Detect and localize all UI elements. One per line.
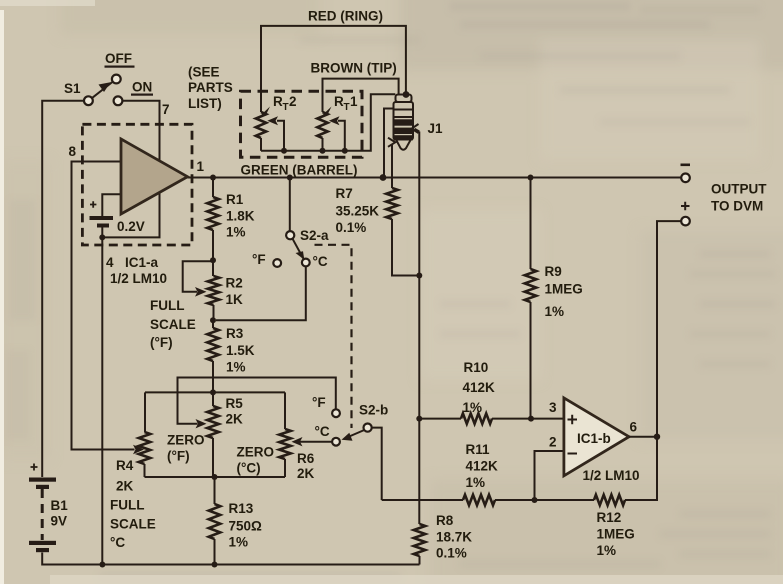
svg-text:S1: S1 — [64, 81, 81, 96]
svg-text:R4: R4 — [116, 458, 134, 473]
svg-text:R8: R8 — [436, 513, 454, 528]
svg-text:S2-a: S2-a — [300, 228, 329, 243]
svg-text:OUTPUT: OUTPUT — [711, 182, 767, 197]
svg-text:6: 6 — [630, 420, 638, 435]
svg-text:°C: °C — [313, 254, 328, 269]
svg-text:1%: 1% — [226, 360, 246, 375]
svg-text:R: R — [273, 94, 283, 109]
svg-text:GREEN (BARREL): GREEN (BARREL) — [241, 163, 358, 178]
svg-text:0.2V: 0.2V — [117, 219, 145, 234]
svg-text:1MEG: 1MEG — [545, 282, 583, 297]
svg-text:FULL: FULL — [110, 498, 145, 513]
svg-text:T: T — [344, 102, 350, 113]
svg-text:BROWN (TIP): BROWN (TIP) — [311, 61, 397, 76]
svg-text:8: 8 — [69, 144, 77, 159]
svg-text:R2: R2 — [226, 276, 243, 291]
svg-text:(°C): (°C) — [237, 461, 261, 476]
svg-text:1: 1 — [350, 94, 358, 109]
svg-text:OFF: OFF — [105, 51, 132, 66]
svg-text:1%: 1% — [466, 475, 486, 490]
svg-text:RED (RING): RED (RING) — [308, 9, 383, 24]
svg-text:2: 2 — [289, 94, 297, 109]
svg-text:ON: ON — [132, 80, 152, 95]
svg-text:1/2 LM10: 1/2 LM10 — [583, 468, 640, 483]
svg-text:ZERO: ZERO — [237, 445, 275, 460]
svg-text:R12: R12 — [597, 510, 622, 525]
svg-text:2K: 2K — [297, 466, 315, 481]
svg-text:R: R — [334, 94, 344, 109]
svg-text:J1: J1 — [428, 121, 444, 136]
svg-text:LIST): LIST) — [188, 96, 222, 111]
svg-text:S2-b: S2-b — [359, 403, 388, 418]
svg-text:°F: °F — [252, 252, 266, 267]
svg-text:1: 1 — [197, 159, 205, 174]
svg-text:2: 2 — [549, 435, 557, 450]
svg-text:1%: 1% — [463, 400, 483, 415]
svg-text:1.8K: 1.8K — [226, 209, 255, 224]
svg-text:(°F): (°F) — [167, 449, 190, 464]
svg-text:750Ω: 750Ω — [229, 519, 263, 534]
svg-text:412K: 412K — [463, 380, 496, 395]
svg-text:°C: °C — [315, 424, 330, 439]
svg-text:7: 7 — [162, 102, 170, 117]
svg-text:FULL: FULL — [150, 298, 185, 313]
svg-text:PARTS: PARTS — [188, 80, 233, 95]
svg-text:1K: 1K — [226, 292, 244, 307]
svg-text:1%: 1% — [226, 225, 246, 240]
svg-text:R3: R3 — [226, 326, 244, 341]
svg-text:TO DVM: TO DVM — [711, 199, 763, 214]
svg-text:0.1%: 0.1% — [336, 220, 367, 235]
svg-text:IC1-b: IC1-b — [577, 431, 611, 446]
svg-text:1.5K: 1.5K — [226, 343, 255, 358]
svg-text:2K: 2K — [226, 412, 244, 427]
svg-text:0.1%: 0.1% — [436, 546, 467, 561]
svg-text:R1: R1 — [226, 192, 244, 207]
svg-text:R9: R9 — [545, 264, 562, 279]
svg-text:R5: R5 — [226, 396, 244, 411]
svg-text:1MEG: 1MEG — [597, 527, 635, 542]
svg-text:R6: R6 — [297, 451, 315, 466]
svg-text:B1: B1 — [51, 498, 69, 513]
svg-text:R10: R10 — [464, 360, 489, 375]
svg-text:IC1-a: IC1-a — [125, 255, 159, 270]
svg-text:(SEE: (SEE — [188, 65, 220, 80]
svg-text:1%: 1% — [597, 543, 617, 558]
svg-text:ZERO: ZERO — [167, 433, 205, 448]
svg-text:°F: °F — [312, 395, 326, 410]
svg-text:SCALE: SCALE — [110, 517, 156, 532]
svg-text:R11: R11 — [466, 442, 491, 457]
svg-text:4: 4 — [106, 255, 114, 270]
svg-text:1/2 LM10: 1/2 LM10 — [110, 271, 167, 286]
svg-text:°C: °C — [110, 535, 125, 550]
svg-text:(°F): (°F) — [150, 335, 173, 350]
svg-text:SCALE: SCALE — [150, 317, 196, 332]
svg-text:3: 3 — [549, 400, 557, 415]
svg-text:9V: 9V — [51, 514, 68, 529]
svg-text:R7: R7 — [336, 186, 353, 201]
svg-text:T: T — [283, 102, 289, 113]
svg-text:35.25K: 35.25K — [336, 204, 380, 219]
svg-text:2K: 2K — [116, 479, 134, 494]
svg-text:18.7K: 18.7K — [436, 530, 472, 545]
svg-text:1%: 1% — [229, 535, 249, 550]
svg-text:R13: R13 — [229, 501, 254, 516]
svg-text:1%: 1% — [545, 304, 565, 319]
svg-text:412K: 412K — [466, 459, 499, 474]
